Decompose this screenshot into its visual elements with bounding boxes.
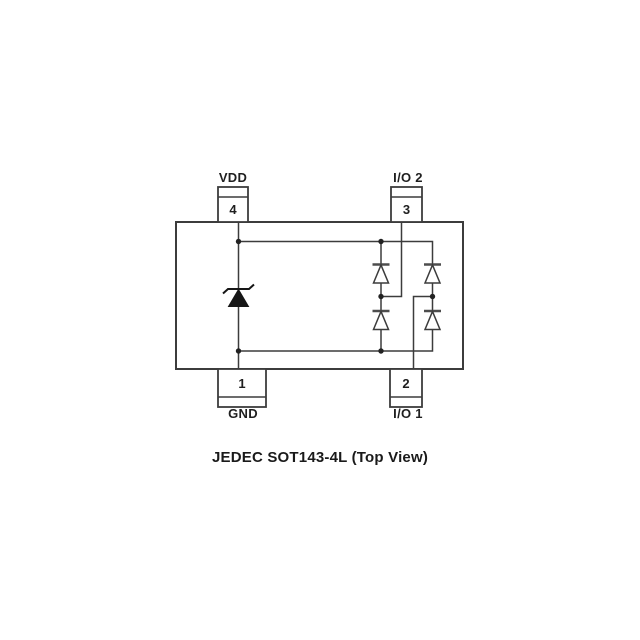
schematic-drawing	[0, 0, 640, 640]
pin-number-4: 4	[218, 197, 248, 222]
junction-dot	[236, 239, 241, 244]
junction-dot	[236, 348, 241, 353]
package-schematic-figure: VDD I/O 2 GND I/O 1 4 3 1 2 JEDEC SOT143…	[0, 0, 640, 640]
pin-label-io2: I/O 2	[378, 170, 438, 185]
pin-number-1: 1	[218, 371, 266, 397]
figure-caption: JEDEC SOT143-4L (Top View)	[0, 449, 640, 466]
pin-number-2: 2	[390, 371, 422, 397]
pin-label-io1: I/O 1	[378, 406, 438, 421]
junction-dot	[378, 239, 383, 244]
ic-body-outline	[176, 222, 463, 369]
pin-label-gnd: GND	[213, 406, 273, 421]
pin-label-vdd: VDD	[203, 170, 263, 185]
junction-dot	[378, 348, 383, 353]
pin-number-3: 3	[391, 197, 422, 222]
junction-dot	[430, 294, 435, 299]
junction-dot	[378, 294, 383, 299]
